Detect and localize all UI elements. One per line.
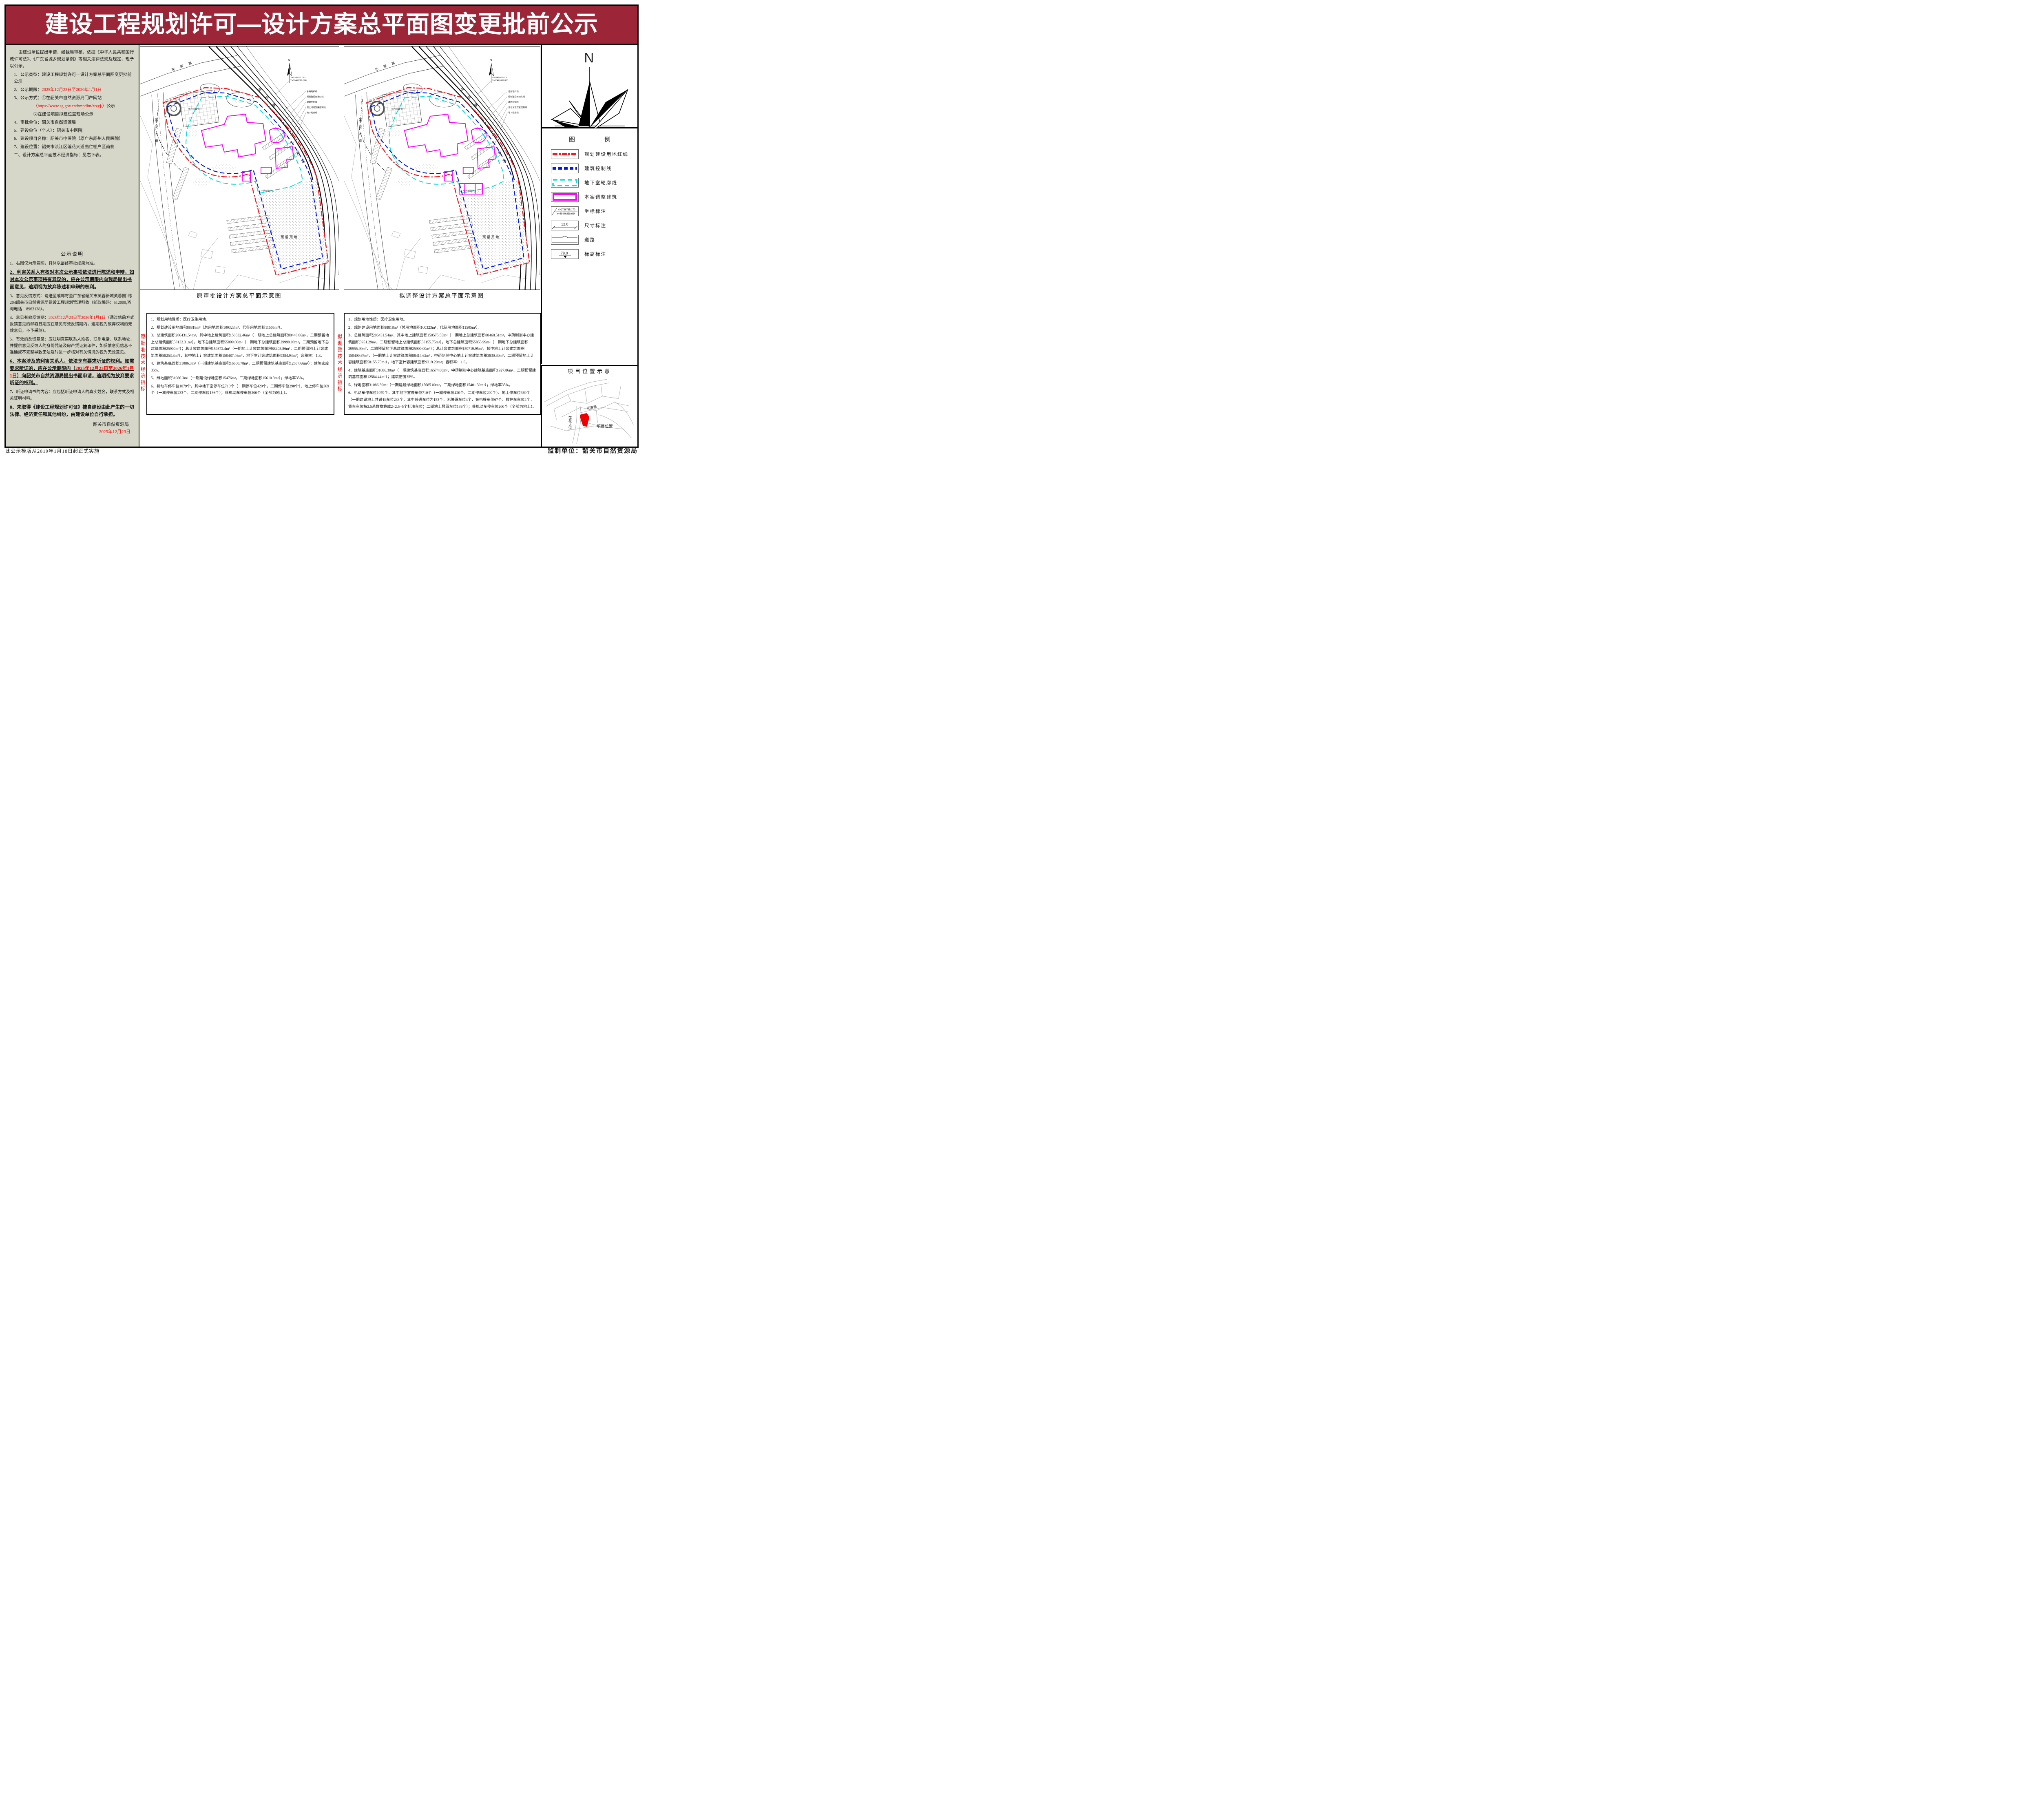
- indicator-item: 3、总建筑面积206431.54m²，其中地上建筑面积150575.55m²（一…: [348, 332, 537, 366]
- signature-agency: 韶关市自然资源局: [10, 421, 135, 429]
- legend-title: 图 例: [542, 135, 637, 144]
- indicator-item: 4、建筑基底面积31086.30m²（一期建筑基底面积16574.00m²，中药…: [348, 367, 537, 381]
- legend-label: 规划建设用地红线: [584, 151, 628, 157]
- notice-item-location: 7、建设位置：韶关市浈江区莲花大道曲仁棚户区南侧: [10, 144, 135, 150]
- legend-panel: 图 例 规划建设用地红线 建筑控制线 地下室轮廓线: [541, 128, 637, 364]
- page-title: 建设工程规划许可—设计方案总平面图变更批前公示: [6, 6, 637, 45]
- period-date: 2025年12月23日至2026年1月1日: [42, 88, 102, 92]
- project-location-label: 项目位置: [597, 424, 613, 429]
- intro-paragraph: 由建设单位提出申请，经我局审核，依据《中华人民共和国行政许可法》、《广东省城乡规…: [10, 49, 135, 70]
- legend-row-control-line: 建筑控制线: [551, 164, 637, 173]
- control-line-symbol-icon: [551, 164, 579, 173]
- notice-sidebar: 由建设单位提出申请，经我局审核，依据《中华人民共和国行政许可法》、《广东省城乡规…: [6, 45, 139, 447]
- adjusted-indicators-side-label: 拟调整技术经济指标: [336, 313, 343, 414]
- indicator-item: 5、绿地面积31086.3m²（一期建设绿地面积15476m²，二期绿地面积15…: [151, 375, 330, 382]
- adjusted-site-plan: [344, 46, 540, 290]
- indicator-item: 6、机动车停车位1079个，其中地下室停车位710个（一期停车位420个，二期停…: [348, 390, 537, 410]
- legend-label: 标高标注: [584, 251, 606, 257]
- adjusted-indicators-block: 1、规划用地性质：医疗卫生用地。 2、规划建设用地面积88818m²（总用地面积…: [344, 313, 541, 415]
- legend-label: 本案调整建筑: [584, 194, 617, 200]
- note-5: 5、有效的反馈意见：应注明真实联系人姓名、联系电话、联系地址，并提供意见反馈人的…: [10, 336, 135, 356]
- legend-row-basement-outline: 地下室轮廓线: [551, 178, 637, 188]
- road-symbol-icon: [551, 235, 579, 245]
- legend-label: 尺寸标注: [584, 222, 606, 229]
- indicator-item: 2、规划建设用地面积88818m²（总用地面积100323m²，代征用地面积11…: [348, 325, 537, 332]
- location-map: 花寨路 莲花大道 项目位置: [542, 377, 637, 447]
- dimension-sample-value: 12.0: [561, 222, 568, 226]
- legend-row-elevation: 79.0 标高标注: [551, 249, 637, 259]
- legend-row-adjusted-building: 本案调整建筑: [551, 192, 637, 202]
- notice-frame: 建设工程规划许可—设计方案总平面图变更批前公示 由建设单位提出申请，经我局审核，…: [4, 4, 639, 448]
- indicator-item: 1、规划用地性质：医疗卫生用地。: [151, 316, 330, 323]
- notice-item-period: 2、公示期限：2025年12月23日至2026年1月1日: [10, 86, 135, 93]
- notice-item-builder: 5、建设单位（个人）：韶关市中医院: [10, 127, 135, 134]
- indicator-item: 4、建筑基底面积31086.3m²（一期建筑基底面积16600.78m²，二期预…: [151, 360, 330, 374]
- notice-info-section: 由建设单位提出申请，经我局审核，依据《中华人民共和国行政许可法》、《广东省城乡规…: [10, 49, 135, 250]
- note-7: 7、听证申请书的内容：应包括听证申请人的真实姓名，联系方式及相关证明材料。: [10, 389, 135, 402]
- notice-item-method: 3、公示方式：①在韶关市自然资源局门户网站: [10, 95, 135, 102]
- notice-item-project: 6、建设项目名称：韶关市中医院（原广东韶州人民医院）: [10, 135, 135, 142]
- portal-url[interactable]: （https://www.sg.gov.cn/bmpdlm/zrzyj/）: [33, 104, 106, 108]
- template-effective-note: 此公示模版从2019年1月18日起正式实施: [5, 447, 100, 454]
- note-2: 2、利害关系人有权对本次公示事项依法进行陈述和申辩，如对本次公示事项持有异议的，…: [10, 269, 135, 291]
- original-indicators-block: 1、规划用地性质：医疗卫生用地。 2、规划建设用地面积88818m²（总用地面积…: [146, 313, 334, 415]
- note-4-pre: 4、意见有效反馈期：: [10, 316, 49, 320]
- notice-item-site-method: ②在建设项目拟建位置现场公示: [10, 111, 135, 118]
- legend-row-dimension: 12.0 尺寸标注: [551, 221, 637, 230]
- coordinate-sample-x: X=2736785.170: [558, 209, 575, 211]
- notice-item-indicators: 二、设计方案总平面技术经济指标：见右下表。: [10, 152, 135, 159]
- legend-label: 地下室轮廓线: [584, 179, 617, 186]
- note-4-date: 2025年12月23日至2026年1月1日: [49, 316, 106, 320]
- elevation-sample-value: 79.0: [561, 251, 568, 255]
- coordinate-sample-y: Y=38446838.694: [557, 213, 576, 215]
- indicator-item: 1、规划用地性质：医疗卫生用地。: [348, 316, 537, 323]
- legend-label: 建筑控制线: [584, 165, 612, 172]
- legend-label: 道路: [584, 237, 595, 243]
- indicator-item: 6、机动车停车位1079个，其中地下室停车位710个（一期停车位420个，二期停…: [151, 383, 330, 397]
- elevation-symbol-icon: 79.0: [551, 249, 579, 259]
- map-road-label-lianhua: 莲花大道: [568, 416, 572, 430]
- note-4: 4、意见有效反馈期：2025年12月23日至2026年1月1日（通过信函方式反馈…: [10, 315, 135, 334]
- note-1: 1、右图仅为示意图，具体以最终审批成果为准。: [10, 261, 135, 267]
- coordinate-symbol-icon: X=2736785.170 Y=38446838.694: [551, 206, 579, 216]
- notice-item-type: 1、公示类型：建设工程规划许可—设计方案总平面图变更批前公示: [10, 71, 135, 85]
- location-map-panel: 花寨路 莲花大道 项目位置: [541, 377, 637, 447]
- location-panel-title: 项目位置示意: [541, 365, 637, 378]
- adjusted-plan-caption: 拟调整设计方案总平面示意图: [344, 292, 540, 300]
- legend-row-redline: 规划建设用地红线: [551, 149, 637, 159]
- note-6-post: ）向韶关市自然资源局提出书面申请，逾期视为放弃要求听证的权利。: [10, 374, 134, 386]
- legend-row-coordinate: X=2736785.170 Y=38446838.694 坐标标注: [551, 206, 637, 216]
- notes-heading: 公示说明: [10, 250, 135, 258]
- legend-label: 坐标标注: [584, 208, 606, 215]
- adjusted-building-symbol-icon: [551, 192, 579, 202]
- period-label: 2、公示期限：: [14, 88, 42, 92]
- notice-item-url: （https://www.sg.gov.cn/bmpdlm/zrzyj/）公示: [10, 103, 135, 110]
- supervising-agency: 监制单位：韶关市自然资源局: [548, 446, 638, 455]
- north-arrow-panel: N: [541, 45, 637, 128]
- compass-north-label: N: [584, 51, 594, 66]
- notice-item-approver: 4、审批单位：韶关市自然资源局: [10, 119, 135, 126]
- signature-date: 2025年12月23日: [10, 429, 135, 436]
- basement-outline-symbol-icon: [551, 178, 579, 188]
- original-indicators-side-label: 原批准技术经济指标: [139, 313, 146, 414]
- note-8: 8、未取得《建设工程规划许可证》擅自建设由此产生的一切法律、经济责任和其他纠纷，…: [10, 404, 135, 419]
- indicator-item: 2、规划建设用地面积88818m²（总用地面积100323m²，代征用地面积11…: [151, 325, 330, 332]
- note-6: 6、本案涉及的利害关系人，依法享有要求听证的权利。如需要求听证的，应在公示期限内…: [10, 358, 135, 387]
- note-3: 3、意见反馈方式：请送至或邮寄至广东省韶关市芙蓉新城芙蓉园1栋204韶关市自然资…: [10, 293, 135, 313]
- indicator-item: 3、总建筑面积206431.54m²，其中地上建筑面积150532.46m²（一…: [151, 332, 330, 359]
- indicator-item: 5、绿地面积31086.30m²（一期建设绿地面积15685.00m²，二期绿地…: [348, 382, 537, 389]
- redline-symbol-icon: [551, 149, 579, 159]
- dimension-symbol-icon: 12.0: [551, 221, 579, 230]
- url-suffix: 公示: [106, 104, 115, 108]
- legend-row-road: 道路: [551, 235, 637, 245]
- original-plan-caption: 原审批设计方案总平面示意图: [140, 292, 338, 300]
- public-notice-page: 建设工程规划许可—设计方案总平面图变更批前公示 由建设单位提出申请，经我局审核，…: [0, 0, 643, 455]
- original-site-plan: [140, 46, 339, 290]
